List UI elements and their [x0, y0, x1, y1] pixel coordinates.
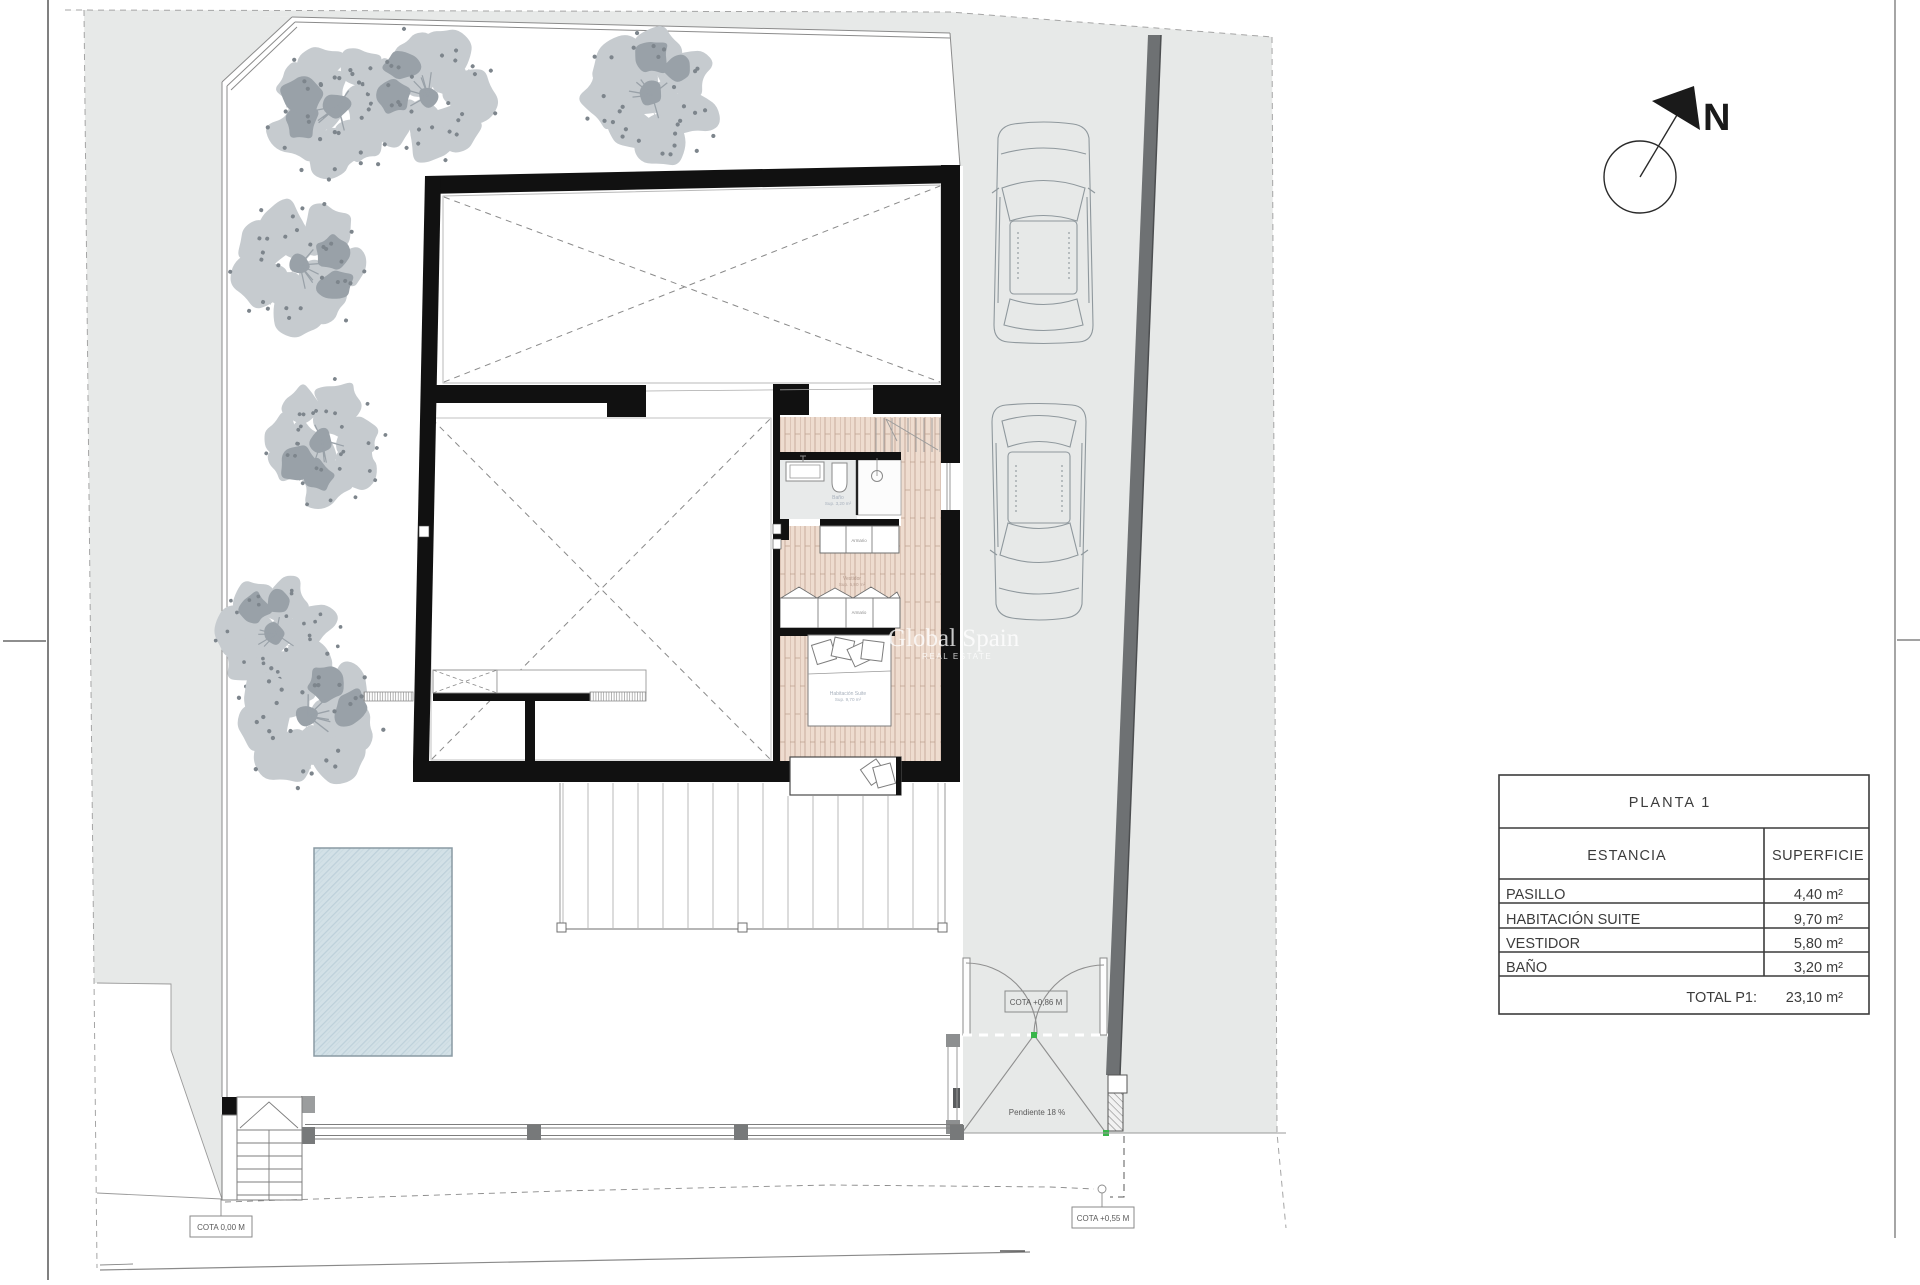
- svg-text:REAL ESTATE: REAL ESTATE: [922, 652, 992, 661]
- svg-text:PLANTA 1: PLANTA 1: [1629, 795, 1712, 811]
- svg-text:Pendiente 18 %: Pendiente 18 %: [1009, 1108, 1066, 1117]
- svg-text:HABITACIÓN SUITE: HABITACIÓN SUITE: [1506, 911, 1641, 928]
- svg-text:Armario: Armario: [851, 538, 867, 543]
- svg-text:ESTANCIA: ESTANCIA: [1587, 848, 1666, 864]
- svg-text:COTA +0,86 M: COTA +0,86 M: [1010, 998, 1063, 1007]
- svg-text:4,40 m²: 4,40 m²: [1794, 887, 1843, 903]
- svg-text:Global Spain: Global Spain: [888, 625, 1020, 652]
- svg-text:Armario: Armario: [852, 610, 867, 615]
- svg-text:5,80 m²: 5,80 m²: [1794, 936, 1843, 952]
- svg-text:3,20 m²: 3,20 m²: [1794, 960, 1843, 976]
- svg-text:Sup. 3,20 m²: Sup. 3,20 m²: [825, 501, 852, 506]
- svg-text:COTA +0,55 M: COTA +0,55 M: [1077, 1214, 1130, 1223]
- svg-text:VESTIDOR: VESTIDOR: [1506, 936, 1580, 952]
- svg-text:PASILLO: PASILLO: [1506, 887, 1565, 903]
- svg-text:BAÑO: BAÑO: [1506, 959, 1547, 976]
- svg-text:23,10 m²: 23,10 m²: [1786, 990, 1843, 1006]
- svg-text:COTA 0,00 M: COTA 0,00 M: [197, 1223, 245, 1232]
- svg-text:Sup. 9,70 m²: Sup. 9,70 m²: [835, 697, 862, 702]
- svg-text:9,70 m²: 9,70 m²: [1794, 912, 1843, 928]
- svg-text:TOTAL P1:: TOTAL P1:: [1686, 990, 1757, 1006]
- svg-text:N: N: [1703, 97, 1730, 139]
- svg-text:SUPERFICIE: SUPERFICIE: [1772, 848, 1864, 864]
- svg-text:Sup. 5,80 m²: Sup. 5,80 m²: [839, 582, 866, 587]
